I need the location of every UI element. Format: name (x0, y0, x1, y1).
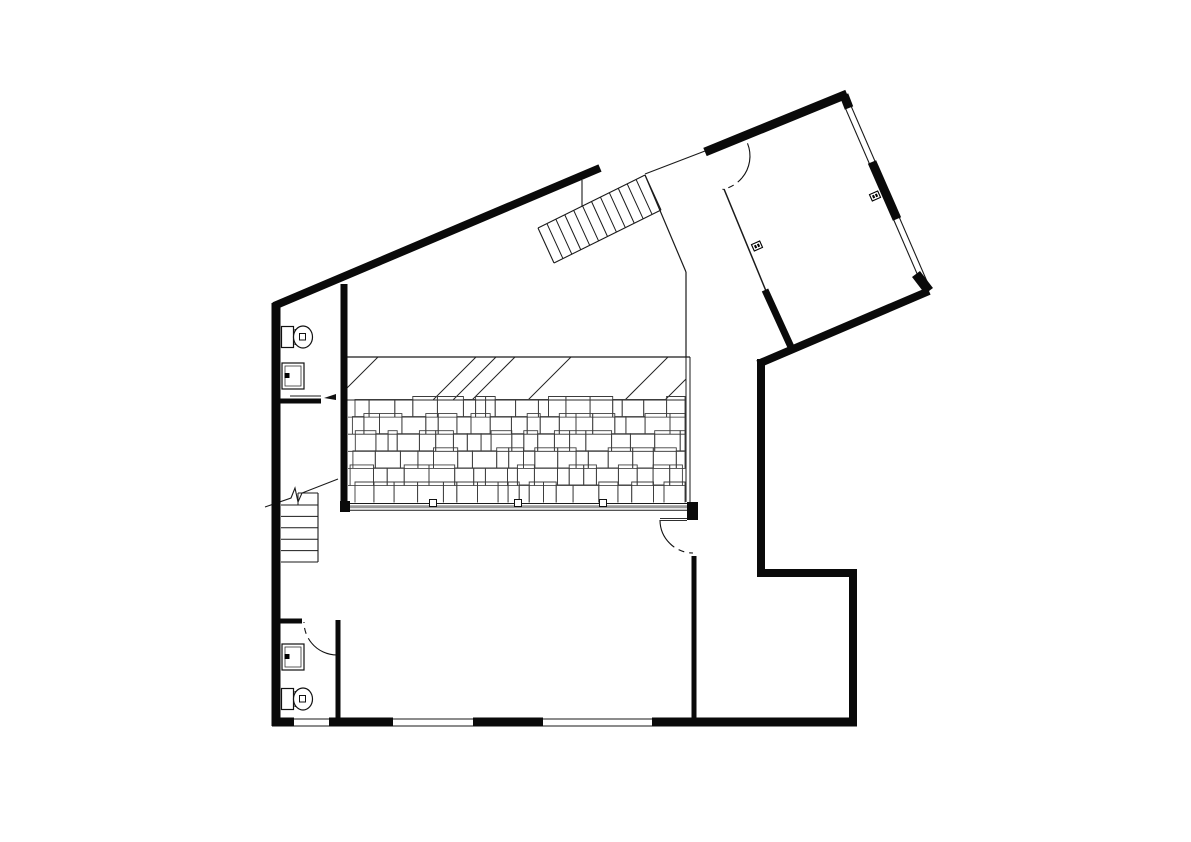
wall-window-stub-bottom (916, 274, 929, 291)
shingle (397, 434, 419, 452)
shingle (596, 468, 618, 486)
shingle (676, 451, 685, 469)
shingle (524, 451, 535, 469)
shingle (612, 434, 631, 452)
entry-threshold-line (645, 151, 705, 174)
room-left-thin-wall (724, 189, 766, 291)
shingle (402, 417, 426, 435)
shingle (395, 400, 413, 418)
shingle (472, 451, 496, 469)
shingle (467, 434, 481, 452)
shingle (529, 482, 543, 503)
deck-post-2 (600, 500, 607, 507)
shingle (376, 434, 388, 452)
deck-diagonal-1 (433, 357, 476, 400)
shingle (474, 468, 486, 486)
shingle (622, 400, 644, 418)
shingle (497, 448, 509, 469)
shingle (588, 451, 608, 469)
toilet-lower-bowl (294, 688, 313, 710)
shingle (618, 485, 632, 503)
shingle (375, 451, 400, 469)
shingle (394, 482, 418, 503)
shingle (586, 431, 612, 452)
shingle (471, 414, 490, 435)
shingle (511, 417, 527, 435)
shingle (478, 482, 499, 503)
deck-diagonal-3 (472, 357, 515, 400)
shingle (355, 400, 369, 418)
shingle (369, 400, 395, 418)
shingle (540, 417, 559, 435)
shingle (654, 485, 665, 503)
outlet-room-left-wall-box (751, 241, 762, 251)
wall-window-mid (872, 162, 897, 219)
wall-top-left-diagonal (274, 168, 600, 306)
shingle (664, 482, 685, 503)
shingle (508, 468, 518, 486)
shingle (355, 431, 376, 452)
shingle (534, 468, 557, 486)
hall-door-arc-dashed (670, 543, 693, 553)
floorplan-svg (0, 0, 1191, 842)
toilet-lower-tank (282, 689, 294, 710)
shingle (632, 482, 654, 503)
shingle (626, 417, 645, 435)
shingle (490, 417, 511, 435)
toilet-upper-bowl (294, 326, 313, 348)
toilet-upper-tank (282, 327, 294, 348)
wall-room-left-spur (765, 290, 791, 347)
shingle (556, 485, 573, 503)
shingle (463, 400, 475, 418)
shingle (353, 451, 375, 469)
entry-door-arc-solid (742, 143, 750, 178)
shingle (374, 482, 394, 503)
shingle (485, 468, 507, 486)
shingle (558, 468, 570, 486)
beam-left-block (340, 501, 350, 512)
shingle (457, 417, 471, 435)
deck-post-1 (515, 500, 522, 507)
shingle (388, 431, 397, 452)
outlet-room-left-wall (751, 241, 762, 251)
shingle (613, 400, 623, 418)
shingle (573, 485, 599, 503)
shingle (630, 434, 654, 452)
shingle (453, 434, 467, 452)
shingle (637, 468, 653, 486)
shingle (498, 482, 508, 503)
shingle (495, 400, 515, 418)
shingle (544, 482, 557, 503)
shingle (374, 468, 388, 486)
deck-diagonal-5 (625, 357, 668, 400)
outlet-room-right-wall-box (869, 191, 880, 201)
shingle (584, 465, 597, 486)
shingle (457, 482, 478, 503)
shingle (538, 434, 555, 452)
deck-diagonal-2 (453, 357, 496, 400)
deck-post-0 (430, 500, 437, 507)
shingle (615, 417, 626, 435)
shingle (680, 431, 685, 452)
sink-lower-tap (285, 654, 290, 659)
lower-bath-door-arc-solid (312, 643, 337, 655)
deck-diagonal-4 (528, 357, 571, 400)
shingle (418, 451, 434, 469)
upper-bath-opening-arrow (324, 394, 336, 400)
lower-bath-door-arc-dashed (304, 622, 312, 643)
shingle (387, 468, 404, 486)
shingle (458, 451, 473, 469)
entry-door-arc-dashed (723, 178, 743, 190)
wall-room-top (705, 94, 847, 152)
shingle (576, 451, 588, 469)
wall-window-stub-top (844, 95, 849, 108)
beam-end-block (687, 502, 698, 520)
sink-upper-tap (285, 373, 290, 378)
shingle (481, 434, 491, 452)
shingle (512, 434, 524, 452)
hall-door-arc-solid (660, 520, 670, 543)
shingle (400, 451, 418, 469)
shingle (352, 417, 364, 435)
floorplan-page (0, 0, 1191, 842)
deck-diagonal-0 (344, 357, 378, 391)
shingle (355, 482, 374, 503)
outlet-room-right-wall (869, 191, 880, 201)
shingle (455, 468, 474, 486)
shingle (644, 400, 667, 418)
